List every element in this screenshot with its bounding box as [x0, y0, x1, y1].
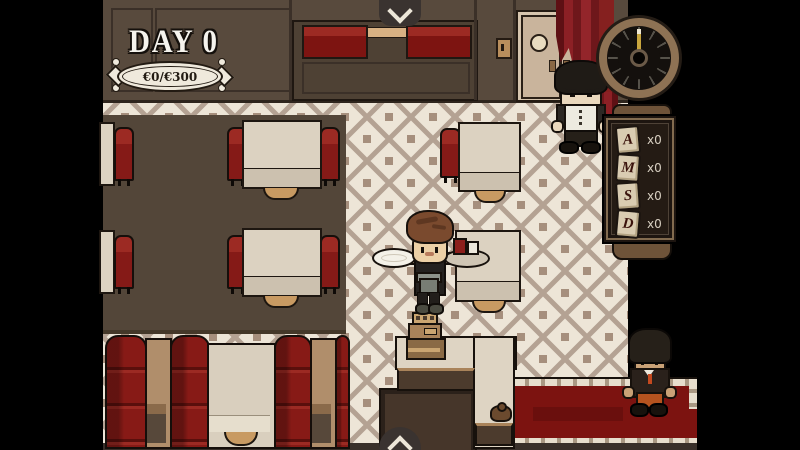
- register-display: [424, 328, 437, 335]
- coffee-cup: [453, 238, 467, 255]
- cash-register[interactable]: [404, 312, 444, 358]
- carpet-shade: [533, 407, 623, 421]
- dining-table-front: [458, 172, 521, 192]
- divider-band: [147, 404, 166, 414]
- seated-shoe: [630, 403, 649, 417]
- vest-button: [579, 122, 582, 125]
- order-ticket-icon: A: [615, 125, 641, 155]
- waiter-shoe: [428, 303, 444, 315]
- vest-button: [579, 116, 582, 119]
- eye: [421, 247, 424, 253]
- hair-fringe: [562, 82, 600, 90]
- plate: [372, 248, 416, 268]
- dining-table: [242, 228, 322, 278]
- seated-hair: [628, 328, 672, 364]
- dining-table: [99, 230, 115, 294]
- game-screen: A x0 M x0 S x0 D x0 DAY 0 €0/€300: [0, 0, 800, 450]
- seated-hand: [664, 386, 677, 399]
- divider-band: [312, 404, 331, 414]
- order-ticket-icon: D: [615, 209, 641, 239]
- chair: [114, 127, 134, 181]
- eye: [435, 247, 438, 253]
- top-booth: [292, 20, 478, 101]
- vest-button: [579, 110, 582, 113]
- wall-clock: [599, 18, 679, 98]
- door-window: [530, 34, 548, 52]
- key-dot: [416, 316, 420, 320]
- booth-table-cloth: [209, 415, 270, 432]
- bread-bag: [490, 405, 512, 422]
- booth-bench: [170, 335, 210, 449]
- tie: [648, 374, 652, 384]
- booth-bench: [335, 335, 350, 449]
- chevron-up-icon: [387, 435, 412, 450]
- cabinet-divider: [474, 0, 477, 100]
- menu-item-row: A x0: [616, 127, 662, 153]
- counter-front: [397, 368, 475, 391]
- money-progress: €0/€300: [122, 66, 218, 87]
- booth-front-panel: [302, 62, 470, 94]
- seated-customer-character[interactable]: [624, 328, 672, 416]
- counter-front: [475, 423, 513, 446]
- milk-jar: [467, 241, 479, 255]
- waiter-hair: [406, 210, 454, 244]
- chair: [320, 235, 340, 289]
- divider-base: [147, 414, 166, 443]
- order-count: x0: [647, 161, 662, 175]
- register-base: [406, 338, 446, 360]
- booth-divider: [310, 338, 337, 449]
- order-count: x0: [647, 133, 662, 147]
- clock-center: [630, 49, 648, 67]
- menu-board: A x0 M x0 S x0 D x0: [602, 114, 678, 244]
- chair: [114, 235, 134, 289]
- key-dot: [423, 316, 427, 320]
- customer-hand: [551, 120, 564, 133]
- booth-bench: [105, 335, 147, 449]
- booth-seat-red: [302, 25, 368, 59]
- money-banner: €0/€300: [108, 56, 230, 94]
- order-count: x0: [647, 217, 662, 231]
- dining-table: [458, 122, 521, 174]
- hair-strand: [432, 224, 446, 230]
- seated-hand: [622, 386, 635, 399]
- key-dot: [430, 316, 434, 320]
- order-ticket-icon: M: [615, 153, 641, 183]
- customer-shoe: [581, 141, 601, 154]
- dining-table: [242, 120, 322, 170]
- plate-rim: [381, 254, 407, 262]
- booth-table-edge: [364, 27, 408, 38]
- seated-shoe: [649, 403, 668, 417]
- menu-item-row: S x0: [616, 183, 662, 209]
- booth-seat-red: [406, 25, 472, 59]
- counter-seam: [475, 364, 509, 370]
- customer-shoe: [559, 141, 579, 154]
- booth-bench: [274, 335, 312, 449]
- order-count: x0: [647, 189, 662, 203]
- freckles: [425, 252, 434, 256]
- dining-table-front: [242, 168, 322, 189]
- bag-knot: [497, 402, 507, 412]
- money-plaque: €0/€300: [117, 61, 223, 92]
- waiter-character[interactable]: [370, 210, 490, 315]
- order-ticket-icon: S: [615, 181, 641, 211]
- switch-slot: [501, 44, 504, 51]
- register-band: [408, 348, 440, 352]
- booth-divider: [145, 338, 172, 449]
- chair: [320, 127, 340, 181]
- divider-base: [312, 414, 331, 443]
- carpet-border-right: [689, 379, 697, 409]
- menu-item-row: M x0: [616, 155, 662, 181]
- top-panel-toggle[interactable]: [379, 0, 421, 26]
- dining-table-front: [242, 276, 322, 297]
- chevron-down-icon: [387, 0, 412, 24]
- light-switch[interactable]: [496, 38, 512, 59]
- dining-table: [99, 122, 115, 186]
- hand-tip: [637, 29, 641, 34]
- menu-item-row: D x0: [616, 211, 662, 237]
